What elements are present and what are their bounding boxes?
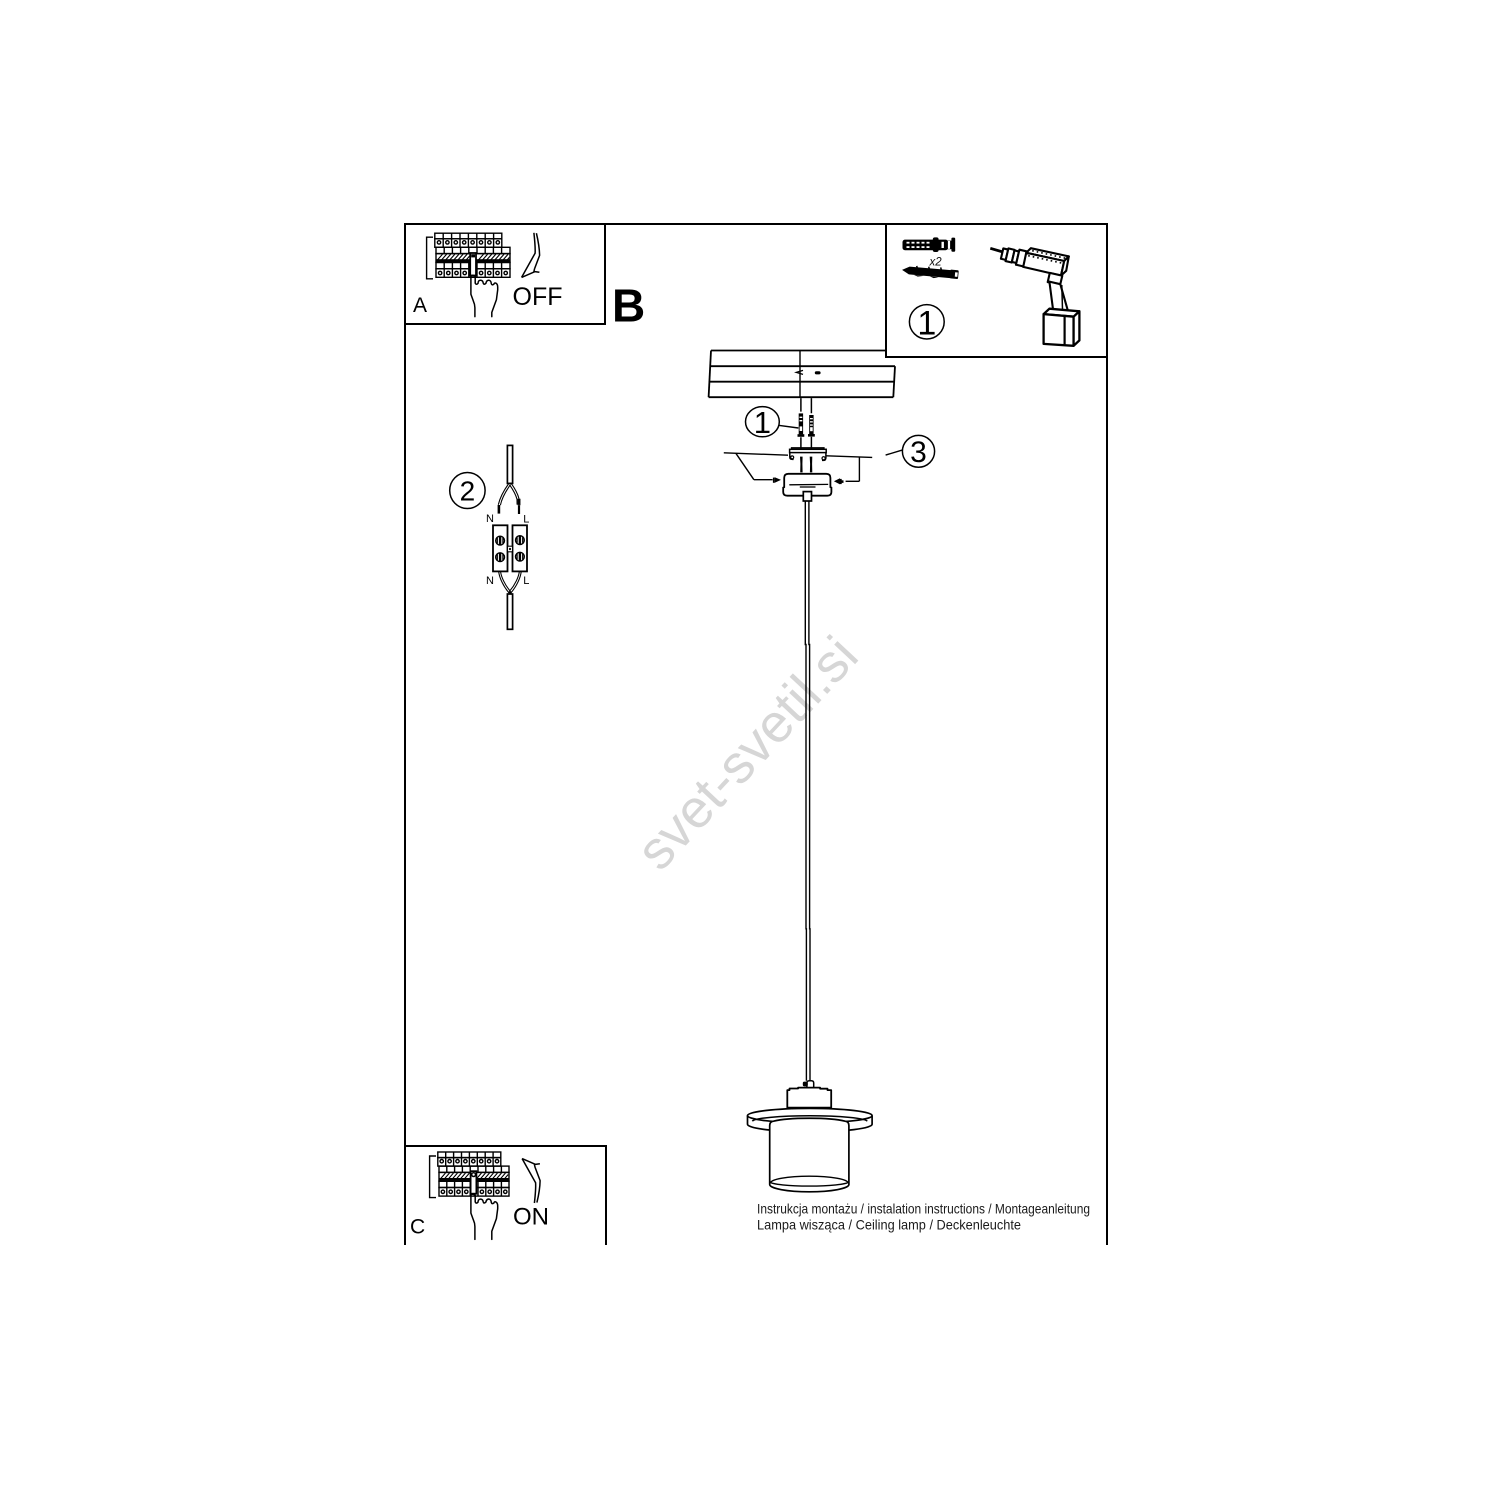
svg-text:x2: x2 bbox=[929, 257, 943, 269]
svg-text:N: N bbox=[486, 575, 494, 587]
svg-text:ON: ON bbox=[513, 1204, 549, 1231]
svg-text:1: 1 bbox=[754, 405, 771, 440]
svg-text:2: 2 bbox=[460, 476, 476, 507]
svg-text:Instrukcja montażu / instalati: Instrukcja montażu / instalation instruc… bbox=[757, 1202, 1090, 1217]
svg-text:L: L bbox=[523, 575, 529, 587]
svg-text:OFF: OFF bbox=[513, 283, 563, 311]
svg-text:N: N bbox=[486, 513, 494, 525]
svg-text:L: L bbox=[523, 514, 529, 526]
svg-text:C: C bbox=[410, 1216, 425, 1239]
svg-text:3: 3 bbox=[910, 436, 927, 469]
svg-text:A: A bbox=[413, 294, 427, 317]
svg-text:1: 1 bbox=[917, 305, 936, 343]
svg-text:B: B bbox=[612, 280, 645, 332]
svg-text:Lampa wisząca / Ceiling lamp /: Lampa wisząca / Ceiling lamp / Deckenleu… bbox=[757, 1218, 1021, 1233]
svg-text:svet-svetil.si: svet-svetil.si bbox=[625, 625, 869, 881]
